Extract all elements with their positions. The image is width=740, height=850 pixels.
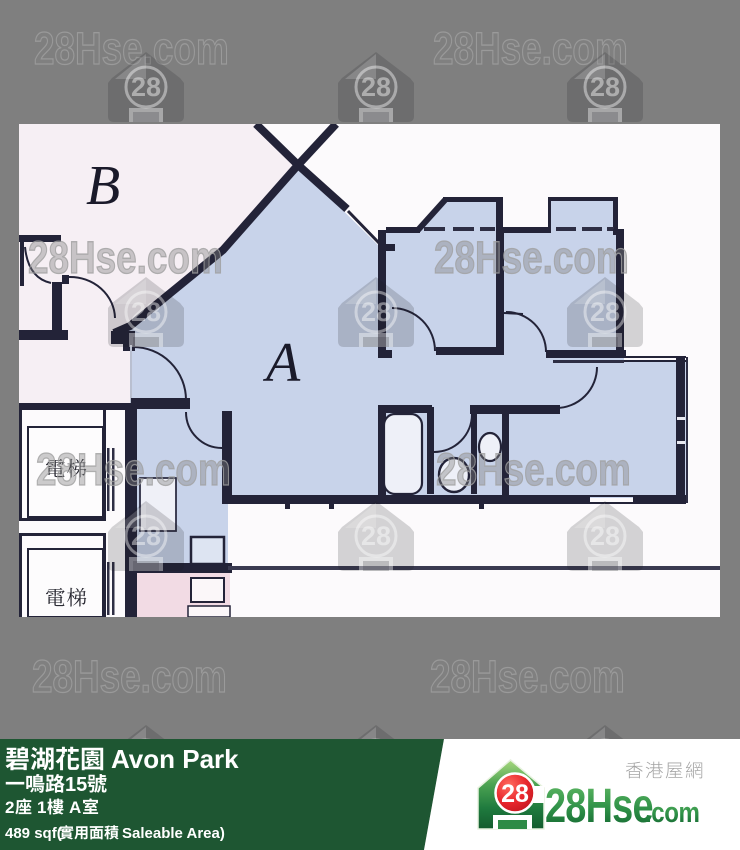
svg-text:28Hse.com: 28Hse.com xyxy=(436,445,631,495)
svg-text:28Hse.com: 28Hse.com xyxy=(32,652,227,702)
svg-text:28Hse: 28Hse xyxy=(545,780,653,833)
svg-text:Avon Park: Avon Park xyxy=(111,744,239,774)
svg-text:Saleable Area): Saleable Area) xyxy=(122,825,225,842)
svg-text:28: 28 xyxy=(361,297,391,327)
svg-text:B: B xyxy=(86,155,120,217)
svg-text:.com: .com xyxy=(645,796,699,829)
svg-text:28: 28 xyxy=(590,297,620,327)
svg-text:28: 28 xyxy=(501,780,529,808)
svg-text:28: 28 xyxy=(131,72,161,102)
svg-text:2: 2 xyxy=(5,798,14,817)
svg-text:1: 1 xyxy=(37,798,46,817)
svg-text:28Hse.com: 28Hse.com xyxy=(434,233,629,283)
svg-text:489 sqf(: 489 sqf( xyxy=(5,825,62,842)
svg-text:28Hse.com: 28Hse.com xyxy=(36,445,231,495)
svg-text:A: A xyxy=(262,332,301,394)
svg-text:28: 28 xyxy=(361,521,391,551)
svg-text:15: 15 xyxy=(65,774,87,796)
svg-text:28Hse.com: 28Hse.com xyxy=(430,652,625,702)
svg-text:28: 28 xyxy=(590,521,620,551)
svg-text:28: 28 xyxy=(131,297,161,327)
svg-text:28: 28 xyxy=(131,521,161,551)
svg-text:28: 28 xyxy=(590,72,620,102)
svg-text:A: A xyxy=(69,798,81,817)
svg-text:28Hse.com: 28Hse.com xyxy=(28,233,223,283)
svg-text:28: 28 xyxy=(361,72,391,102)
